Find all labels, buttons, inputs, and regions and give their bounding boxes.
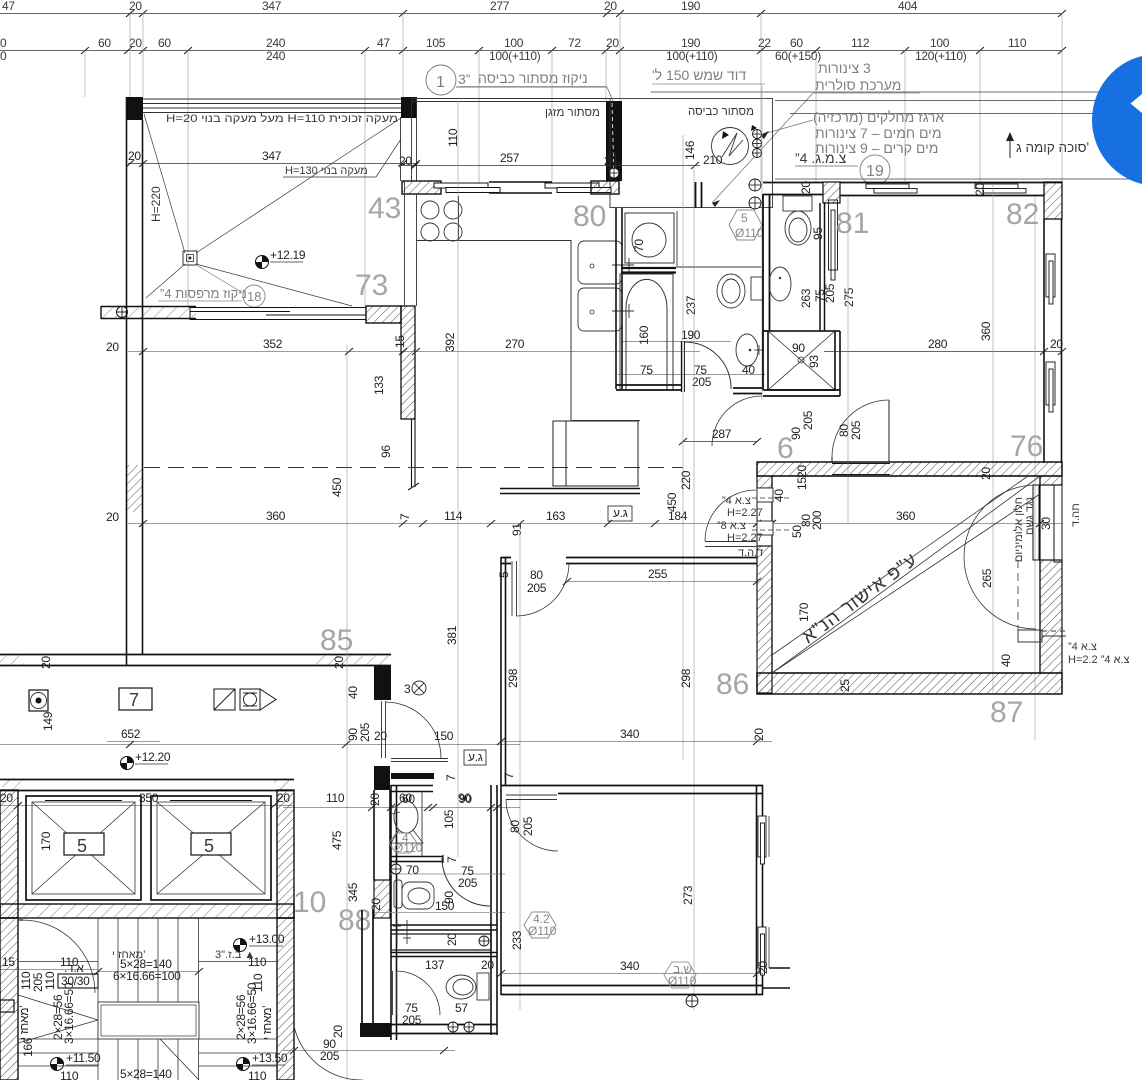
svg-text:170: 170 bbox=[39, 831, 53, 851]
svg-text:20: 20 bbox=[331, 1025, 345, 1038]
svg-text:70: 70 bbox=[632, 239, 646, 252]
svg-text:360: 360 bbox=[896, 509, 916, 523]
svg-text:360: 360 bbox=[266, 509, 286, 523]
svg-text:20: 20 bbox=[799, 181, 813, 194]
svg-text:43: 43 bbox=[368, 192, 401, 225]
svg-text:15: 15 bbox=[393, 335, 407, 348]
svg-text:270: 270 bbox=[505, 337, 525, 351]
svg-text:ניקוז מסתור כביסה: ניקוז מסתור כביסה bbox=[478, 70, 588, 86]
svg-text:+12.20: +12.20 bbox=[135, 750, 171, 764]
svg-text:137: 137 bbox=[425, 958, 445, 972]
svg-text:5×28=140: 5×28=140 bbox=[120, 1067, 172, 1080]
svg-text:90: 90 bbox=[792, 341, 805, 355]
svg-text:205: 205 bbox=[527, 581, 547, 595]
svg-text:20: 20 bbox=[606, 36, 619, 50]
svg-text:ג.ע: ג.ע bbox=[468, 750, 483, 764]
svg-text:30: 30 bbox=[1039, 517, 1053, 530]
svg-text:0: 0 bbox=[0, 36, 7, 50]
svg-text:20: 20 bbox=[129, 36, 142, 50]
svg-text:240: 240 bbox=[266, 49, 286, 63]
svg-text:263: 263 bbox=[799, 288, 813, 308]
svg-text:220: 220 bbox=[679, 470, 693, 490]
svg-text:3×16.66=50: 3×16.66=50 bbox=[245, 982, 259, 1044]
svg-text:90: 90 bbox=[442, 891, 456, 904]
svg-text:20: 20 bbox=[368, 793, 382, 806]
svg-text:240: 240 bbox=[266, 36, 286, 50]
svg-text:20: 20 bbox=[973, 183, 987, 196]
svg-text:75: 75 bbox=[640, 363, 653, 377]
svg-text:צ.מ.ג. 4”: צ.מ.ג. 4” bbox=[795, 150, 847, 166]
svg-text:20: 20 bbox=[39, 656, 53, 669]
svg-text:166: 166 bbox=[21, 1037, 35, 1057]
svg-text:20: 20 bbox=[979, 467, 993, 480]
svg-text:91: 91 bbox=[510, 523, 524, 536]
svg-text:מסתור מזגן: מסתור מזגן bbox=[545, 107, 600, 119]
svg-text:146: 146 bbox=[683, 140, 697, 160]
svg-text:20: 20 bbox=[752, 728, 766, 741]
svg-text:273: 273 bbox=[681, 885, 695, 905]
svg-text:25: 25 bbox=[838, 679, 852, 692]
svg-text:257: 257 bbox=[500, 151, 520, 165]
svg-text:6×16.66=100: 6×16.66=100 bbox=[113, 969, 181, 983]
svg-text:מים חמים – 7 צינורות: מים חמים – 7 צינורות bbox=[815, 125, 941, 141]
svg-text:255: 255 bbox=[648, 567, 668, 581]
svg-text:7: 7 bbox=[398, 513, 412, 520]
svg-text:360: 360 bbox=[979, 321, 993, 341]
svg-text:205: 205 bbox=[521, 816, 535, 836]
svg-text:96: 96 bbox=[379, 445, 393, 458]
svg-text:20: 20 bbox=[1050, 337, 1063, 351]
svg-text:דוד שמש 150 ל': דוד שמש 150 ל' bbox=[652, 67, 746, 83]
svg-text:15: 15 bbox=[2, 955, 15, 969]
svg-text:450: 450 bbox=[665, 492, 679, 512]
svg-text:47: 47 bbox=[377, 36, 390, 50]
svg-text:352: 352 bbox=[263, 337, 283, 351]
svg-text:20: 20 bbox=[374, 729, 387, 743]
svg-text:163: 163 bbox=[546, 509, 566, 523]
svg-text:60: 60 bbox=[790, 36, 803, 50]
svg-text:+13.00: +13.00 bbox=[249, 932, 285, 946]
svg-text:205: 205 bbox=[692, 375, 712, 389]
svg-text:345: 345 bbox=[346, 882, 360, 902]
svg-text:205: 205 bbox=[801, 410, 815, 430]
svg-text:60: 60 bbox=[158, 36, 171, 50]
svg-text:72: 72 bbox=[568, 36, 581, 50]
svg-text:70: 70 bbox=[406, 863, 419, 877]
svg-text:205: 205 bbox=[458, 876, 478, 890]
svg-text:100: 100 bbox=[504, 36, 524, 50]
svg-text:76: 76 bbox=[1010, 430, 1043, 463]
svg-text:20: 20 bbox=[106, 340, 119, 354]
svg-text:צ.א 4” H=2.2: צ.א 4” H=2.2 bbox=[1068, 654, 1130, 666]
svg-text:3”: 3” bbox=[458, 71, 471, 87]
svg-text:105: 105 bbox=[426, 36, 446, 50]
svg-text:1: 1 bbox=[436, 74, 445, 91]
svg-text:404: 404 bbox=[898, 0, 918, 13]
svg-text:160: 160 bbox=[637, 325, 651, 345]
svg-text:110: 110 bbox=[248, 955, 267, 969]
svg-text:210: 210 bbox=[703, 153, 723, 167]
svg-text:110: 110 bbox=[326, 791, 345, 805]
svg-text:Ø110: Ø110 bbox=[668, 974, 697, 988]
svg-text:110: 110 bbox=[60, 1069, 79, 1080]
svg-text:7: 7 bbox=[129, 690, 139, 710]
svg-text:+11.50: +11.50 bbox=[66, 1051, 101, 1065]
svg-text:93: 93 bbox=[807, 355, 821, 368]
svg-text:H=2.27: H=2.27 bbox=[727, 507, 763, 519]
svg-text:5: 5 bbox=[497, 571, 511, 578]
svg-text:40: 40 bbox=[999, 654, 1013, 667]
svg-text:81: 81 bbox=[836, 207, 869, 240]
svg-text:105: 105 bbox=[442, 809, 456, 829]
svg-text:652: 652 bbox=[121, 727, 141, 741]
svg-text:340: 340 bbox=[620, 959, 640, 973]
svg-text:3×16.66=50: 3×16.66=50 bbox=[62, 982, 76, 1044]
svg-text:340: 340 bbox=[620, 727, 640, 741]
svg-text:88: 88 bbox=[338, 904, 371, 937]
svg-text:277: 277 bbox=[490, 0, 510, 13]
svg-text:7: 7 bbox=[445, 856, 459, 863]
svg-text:95: 95 bbox=[811, 227, 825, 240]
svg-text:צ.א 4”: צ.א 4” bbox=[1068, 641, 1097, 653]
svg-text:350: 350 bbox=[139, 791, 159, 805]
svg-text:450: 450 bbox=[330, 477, 344, 497]
svg-text:100(+110): 100(+110) bbox=[666, 49, 718, 63]
svg-text:120(+110): 120(+110) bbox=[915, 49, 967, 63]
svg-text:200: 200 bbox=[810, 510, 824, 530]
svg-text:347: 347 bbox=[262, 0, 282, 13]
svg-text:90: 90 bbox=[459, 792, 472, 806]
svg-text:18: 18 bbox=[247, 289, 261, 304]
svg-text:60(+150): 60(+150) bbox=[775, 49, 821, 63]
svg-text:100: 100 bbox=[930, 36, 950, 50]
svg-text:5: 5 bbox=[77, 836, 87, 856]
svg-text:80: 80 bbox=[508, 820, 522, 833]
svg-text:ניקוז מרפסות 4”: ניקוז מרפסות 4” bbox=[160, 286, 247, 301]
svg-text:150: 150 bbox=[434, 729, 454, 743]
svg-text:+13.50: +13.50 bbox=[252, 1051, 288, 1065]
svg-text:7: 7 bbox=[444, 774, 458, 781]
svg-text:205: 205 bbox=[358, 722, 372, 742]
svg-text:233: 233 bbox=[510, 930, 524, 950]
svg-text:20: 20 bbox=[399, 154, 412, 168]
svg-text:86: 86 bbox=[716, 668, 749, 701]
svg-text:מסתור כביסה: מסתור כביסה bbox=[688, 106, 754, 118]
svg-text:נגד גשם: נגד גשם bbox=[1024, 497, 1036, 535]
svg-text:190: 190 bbox=[681, 328, 701, 342]
svg-text:20: 20 bbox=[756, 961, 770, 974]
svg-text:237: 237 bbox=[684, 295, 698, 315]
svg-text:מאחז י': מאחז י' bbox=[17, 1006, 31, 1040]
svg-text:80: 80 bbox=[573, 200, 606, 233]
svg-text:20: 20 bbox=[332, 656, 346, 669]
svg-text:צ.א 8”: צ.א 8” bbox=[717, 520, 746, 532]
svg-text:0: 0 bbox=[0, 49, 7, 63]
svg-text:ד.ה.ד: ד.ה.ד bbox=[738, 547, 763, 559]
svg-text:Ø110: Ø110 bbox=[735, 226, 764, 240]
svg-text:20: 20 bbox=[605, 152, 619, 165]
svg-text:20: 20 bbox=[128, 149, 141, 163]
svg-text:100(+110): 100(+110) bbox=[489, 49, 541, 63]
svg-text:110: 110 bbox=[1008, 36, 1027, 50]
svg-text:85: 85 bbox=[320, 624, 353, 657]
svg-text:190: 190 bbox=[681, 36, 701, 50]
svg-text:+12.19: +12.19 bbox=[270, 248, 306, 262]
svg-text:20: 20 bbox=[106, 510, 119, 524]
svg-text:114: 114 bbox=[444, 509, 463, 523]
svg-text:19: 19 bbox=[866, 163, 884, 180]
svg-text:מאחז י': מאחז י' bbox=[260, 1006, 274, 1040]
svg-text:40: 40 bbox=[346, 686, 360, 699]
svg-text:347: 347 bbox=[262, 149, 282, 163]
svg-text:סוכה קומה ג': סוכה קומה ג' bbox=[1016, 140, 1089, 155]
svg-text:392: 392 bbox=[443, 332, 457, 352]
svg-text:תה.ד: תה.ד bbox=[1070, 503, 1082, 527]
svg-text:110: 110 bbox=[43, 971, 57, 990]
svg-text:87: 87 bbox=[990, 696, 1023, 729]
svg-text:מעקה בנוי H=130: מעקה בנוי H=130 bbox=[285, 165, 368, 177]
svg-text:205: 205 bbox=[320, 1049, 340, 1063]
svg-text:20: 20 bbox=[369, 898, 383, 911]
svg-text:149: 149 bbox=[41, 711, 55, 731]
svg-text:H=2.27: H=2.27 bbox=[727, 532, 763, 544]
svg-text:265: 265 bbox=[980, 568, 994, 588]
svg-text:82: 82 bbox=[1006, 198, 1039, 231]
svg-text:3: 3 bbox=[404, 682, 411, 696]
svg-text:40: 40 bbox=[742, 363, 755, 377]
svg-text:298: 298 bbox=[506, 668, 520, 688]
svg-text:צ.א 4”: צ.א 4” bbox=[722, 495, 751, 507]
svg-text:40: 40 bbox=[772, 489, 786, 502]
svg-text:.א.ד: .א.ד bbox=[64, 961, 84, 975]
svg-text:475: 475 bbox=[330, 830, 344, 850]
svg-text:20: 20 bbox=[604, 0, 617, 13]
svg-text:3 צינורות: 3 צינורות bbox=[818, 60, 871, 76]
svg-text:205: 205 bbox=[849, 420, 863, 440]
svg-text:Ø110: Ø110 bbox=[394, 841, 423, 855]
svg-text:381: 381 bbox=[445, 625, 459, 645]
svg-text:מעקה זכוכית H=110 מעל מעקה בנו: מעקה זכוכית H=110 מעל מעקה בנוי H=20 bbox=[166, 112, 398, 125]
svg-text:20: 20 bbox=[129, 0, 142, 13]
svg-text:5: 5 bbox=[204, 836, 214, 856]
svg-text:22: 22 bbox=[758, 36, 771, 50]
svg-text:7: 7 bbox=[502, 772, 516, 779]
svg-text:110: 110 bbox=[248, 1069, 267, 1080]
svg-text:275: 275 bbox=[842, 287, 856, 307]
svg-text:Ø110: Ø110 bbox=[528, 924, 557, 938]
svg-text:10: 10 bbox=[293, 886, 326, 919]
svg-text:20: 20 bbox=[481, 958, 494, 972]
svg-text:ג.ע: ג.ע bbox=[613, 506, 628, 520]
svg-text:20: 20 bbox=[445, 933, 459, 946]
svg-text:205: 205 bbox=[823, 283, 837, 303]
svg-text:112: 112 bbox=[851, 36, 870, 50]
svg-text:H=220: H=220 bbox=[149, 186, 163, 222]
svg-text:298: 298 bbox=[679, 668, 693, 688]
svg-text:60: 60 bbox=[98, 36, 111, 50]
svg-text:280: 280 bbox=[928, 337, 948, 351]
svg-text:מערכת סולרית: מערכת סולרית bbox=[815, 77, 901, 93]
svg-text:ארגז מחלקים (מרכזיה): ארגז מחלקים (מרכזיה) bbox=[813, 109, 944, 125]
svg-text:57: 57 bbox=[455, 1001, 468, 1015]
svg-text:5: 5 bbox=[741, 211, 748, 225]
svg-text:47: 47 bbox=[2, 0, 15, 13]
svg-text:133: 133 bbox=[372, 375, 386, 395]
svg-text:170: 170 bbox=[797, 602, 811, 622]
svg-text:73: 73 bbox=[355, 269, 388, 302]
svg-text:80: 80 bbox=[530, 568, 543, 582]
svg-text:190: 190 bbox=[681, 0, 701, 13]
